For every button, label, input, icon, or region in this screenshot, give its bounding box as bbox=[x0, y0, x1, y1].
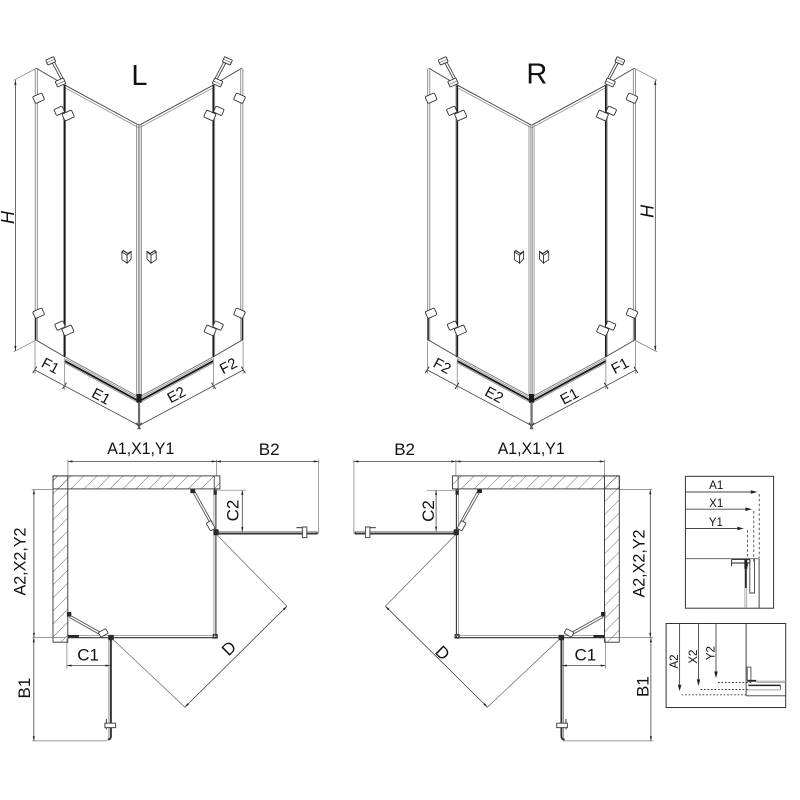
svg-text:X2: X2 bbox=[688, 650, 700, 664]
svg-text:E2: E2 bbox=[164, 383, 188, 407]
svg-text:A2: A2 bbox=[669, 654, 681, 668]
svg-text:A1,X1,Y1: A1,X1,Y1 bbox=[107, 439, 174, 458]
svg-text:R: R bbox=[526, 59, 547, 91]
svg-text:B2: B2 bbox=[394, 440, 415, 459]
svg-text:E1: E1 bbox=[89, 385, 113, 409]
svg-text:Y2: Y2 bbox=[706, 646, 718, 660]
svg-text:A2,X2,Y2: A2,X2,Y2 bbox=[10, 528, 29, 596]
svg-text:C2: C2 bbox=[224, 500, 243, 522]
svg-text:C1: C1 bbox=[575, 646, 597, 665]
svg-text:Y1: Y1 bbox=[709, 517, 723, 529]
svg-text:B1: B1 bbox=[633, 676, 652, 697]
svg-text:F2: F2 bbox=[217, 355, 240, 378]
svg-text:A1: A1 bbox=[709, 480, 723, 492]
svg-text:F2: F2 bbox=[430, 355, 453, 378]
svg-text:B2: B2 bbox=[259, 440, 280, 459]
svg-text:C2: C2 bbox=[419, 500, 438, 522]
svg-text:C1: C1 bbox=[77, 646, 99, 665]
svg-text:H: H bbox=[0, 210, 18, 224]
svg-text:L: L bbox=[131, 60, 147, 92]
svg-text:A2,X2,Y2: A2,X2,Y2 bbox=[629, 530, 648, 598]
svg-text:F1: F1 bbox=[609, 355, 632, 378]
svg-text:A1,X1,Y1: A1,X1,Y1 bbox=[498, 439, 565, 458]
svg-text:D: D bbox=[431, 642, 453, 664]
svg-text:X1: X1 bbox=[709, 498, 723, 510]
svg-text:H: H bbox=[637, 204, 657, 218]
svg-text:F1: F1 bbox=[39, 355, 62, 378]
svg-text:E1: E1 bbox=[558, 385, 582, 409]
svg-text:B1: B1 bbox=[15, 678, 34, 699]
